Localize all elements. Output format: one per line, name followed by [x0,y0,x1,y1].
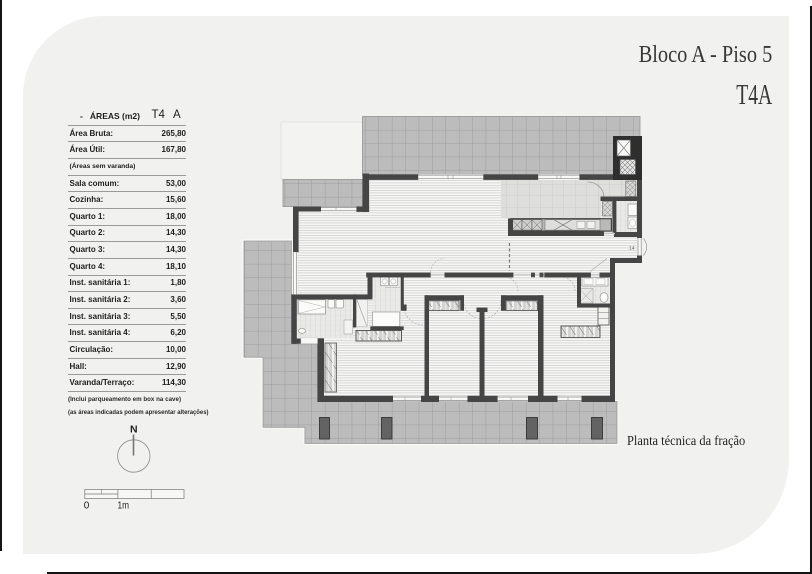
svg-text:0: 0 [84,501,90,512]
svg-text:14: 14 [629,246,635,252]
svg-text:N: N [130,423,138,435]
svg-text:1m: 1m [118,501,130,512]
